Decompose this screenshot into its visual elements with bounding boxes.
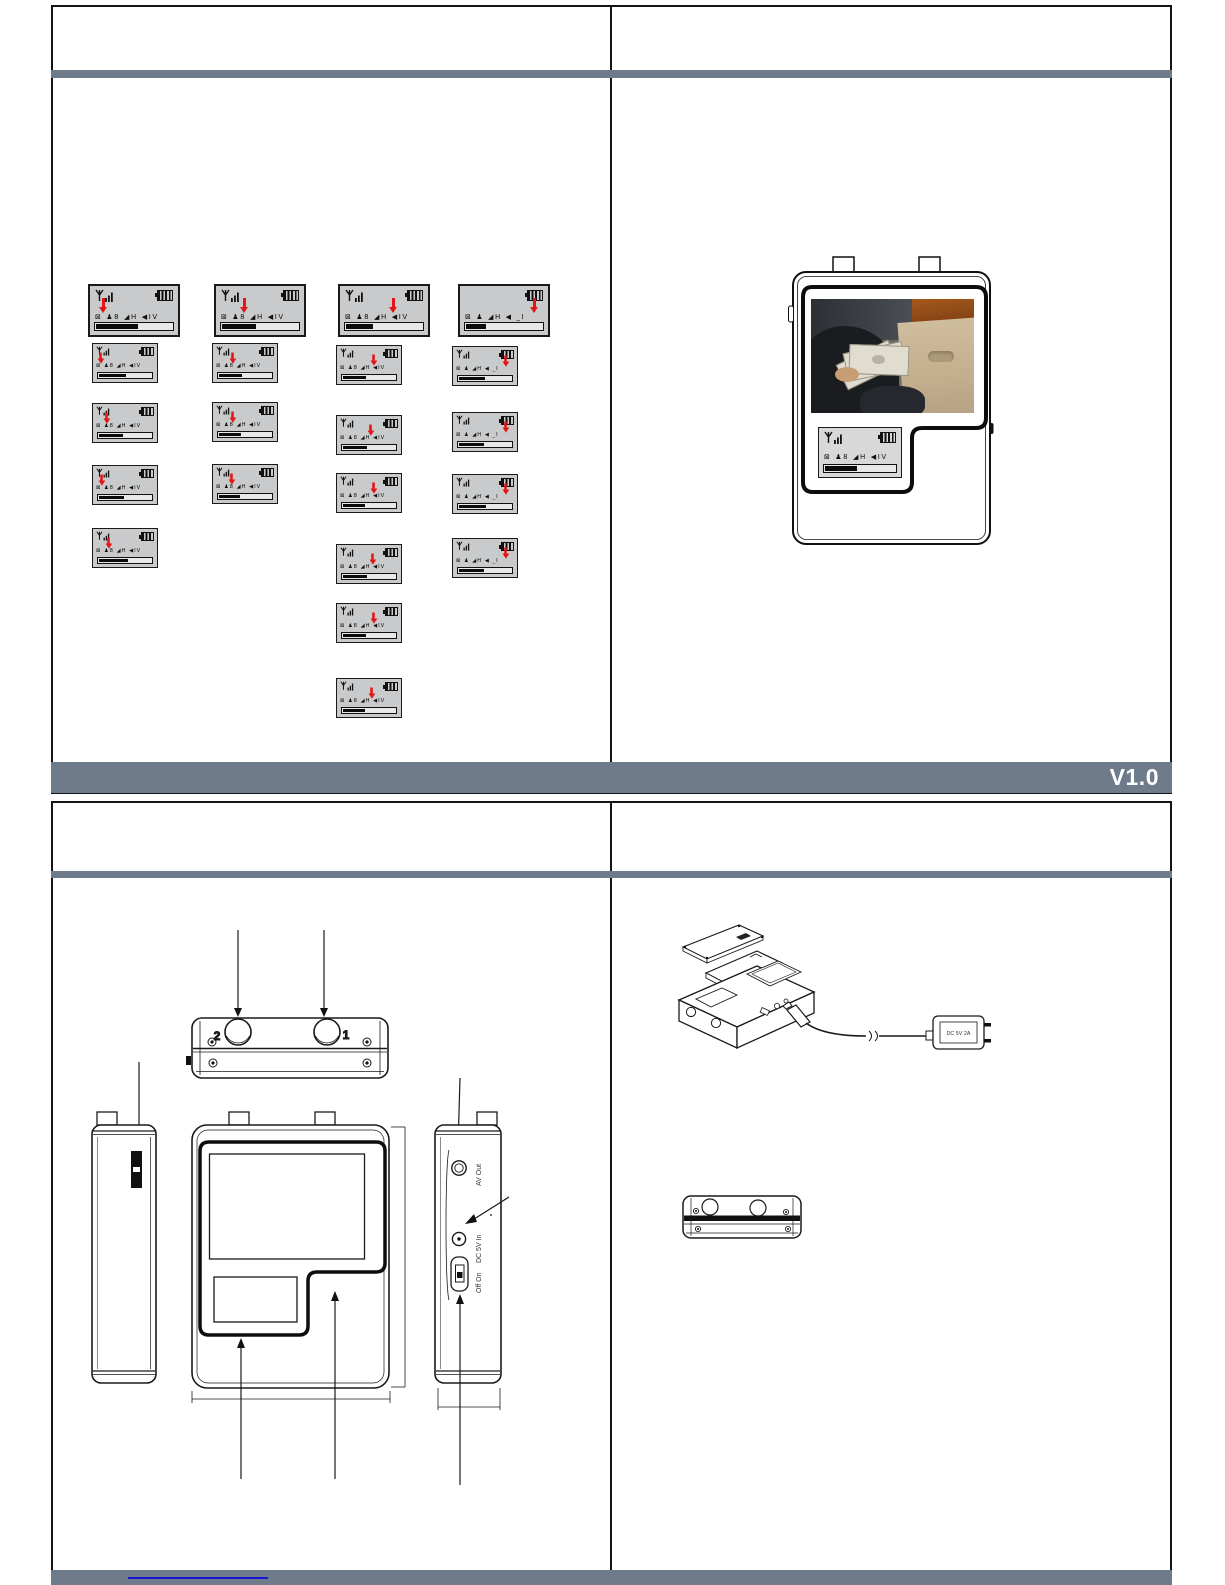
page2-header-rule — [51, 871, 1172, 878]
cable-break-mark — [869, 1031, 878, 1041]
footer-hyperlink[interactable] — [128, 1577, 268, 1579]
front-view-drawing — [192, 1112, 405, 1479]
battery-charging-illustration: DC 5V 2A — [655, 898, 1000, 1248]
iso-antenna-jack-2 — [711, 1018, 720, 1027]
screen-photo-car-interior — [811, 299, 974, 413]
antenna-label-1: 1 — [343, 1028, 350, 1042]
page1-footer-band: V1.0 — [51, 762, 1172, 793]
adapter-label: DC 5V 2A — [947, 1031, 971, 1037]
right-side-view-drawing: AV Out DC 5V In Off On — [435, 1078, 509, 1485]
device-views-technical-drawing: 2 1 — [60, 920, 520, 1495]
pointer-arrow-antenna2 — [234, 1008, 242, 1017]
page1-column-divider — [610, 5, 612, 794]
main-screen-area — [210, 1154, 365, 1259]
left-side-view-drawing — [92, 1062, 156, 1383]
small-antenna-hole-2 — [750, 1200, 766, 1216]
small-antenna-hole-1 — [702, 1199, 718, 1215]
dc-in-label: DC 5V In — [476, 1234, 483, 1263]
side-nub — [989, 423, 994, 434]
status-lcd-area — [214, 1277, 297, 1322]
power-switch-label: Off On — [476, 1272, 483, 1293]
page1-header-rule — [51, 70, 1172, 78]
device-body-isometric — [679, 961, 814, 1048]
antenna-label-2: 2 — [214, 1029, 221, 1043]
antenna-connector-1 — [314, 1019, 340, 1045]
av-out-label: AV Out — [476, 1164, 483, 1186]
photo-person-arm — [860, 386, 925, 413]
antenna-stub-right — [919, 257, 940, 273]
side-button — [789, 306, 794, 322]
antenna-connector-2 — [225, 1019, 251, 1045]
version-label: V1.0 — [1110, 764, 1159, 790]
top-view-drawing: 2 1 — [186, 930, 388, 1078]
pointer-arrow-antenna1 — [320, 1008, 328, 1017]
side-tab — [186, 1056, 191, 1065]
antenna-stub-left — [833, 257, 854, 273]
iso-antenna-jack-1 — [686, 1007, 695, 1016]
page2-column-divider — [610, 801, 612, 1585]
small-top-view-drawing — [683, 1196, 801, 1238]
photo-door-handle — [928, 351, 954, 362]
manual-scan-canvas: V1.0 — [0, 0, 1225, 1585]
